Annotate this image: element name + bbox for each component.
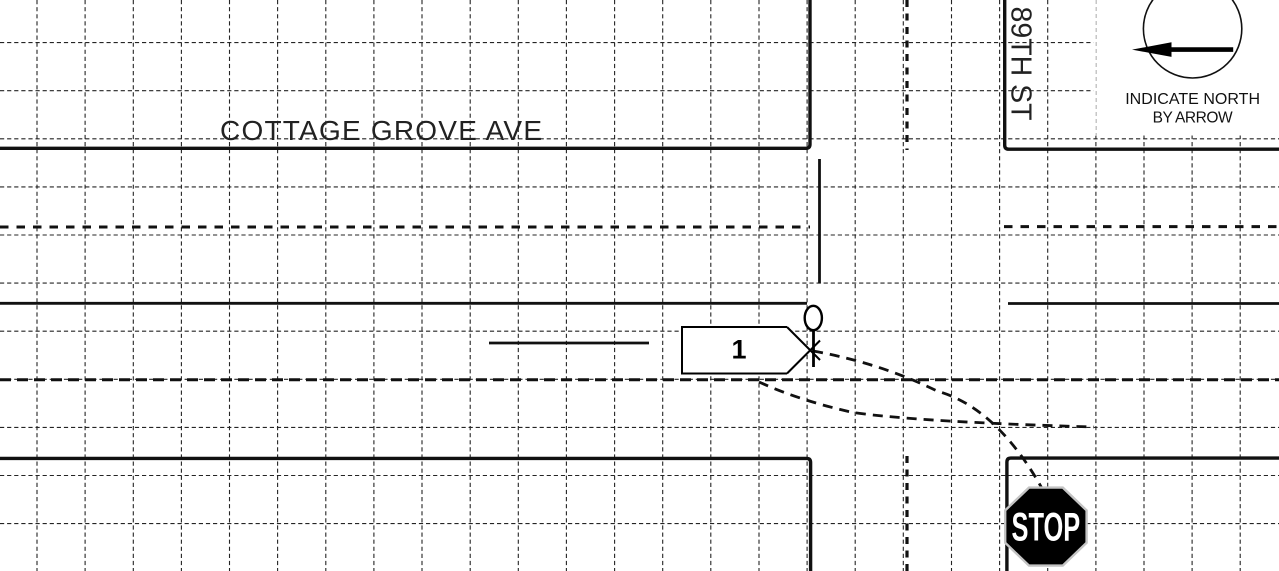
svg-text:STOP: STOP	[1012, 506, 1081, 550]
svg-text:1: 1	[731, 334, 746, 364]
svg-text:BY ARROW: BY ARROW	[1153, 110, 1233, 127]
svg-text:89TH ST: 89TH ST	[1005, 7, 1037, 121]
svg-text:COTTAGE GROVE AVE: COTTAGE GROVE AVE	[220, 115, 542, 146]
svg-text:INDICATE NORTH: INDICATE NORTH	[1125, 91, 1260, 108]
